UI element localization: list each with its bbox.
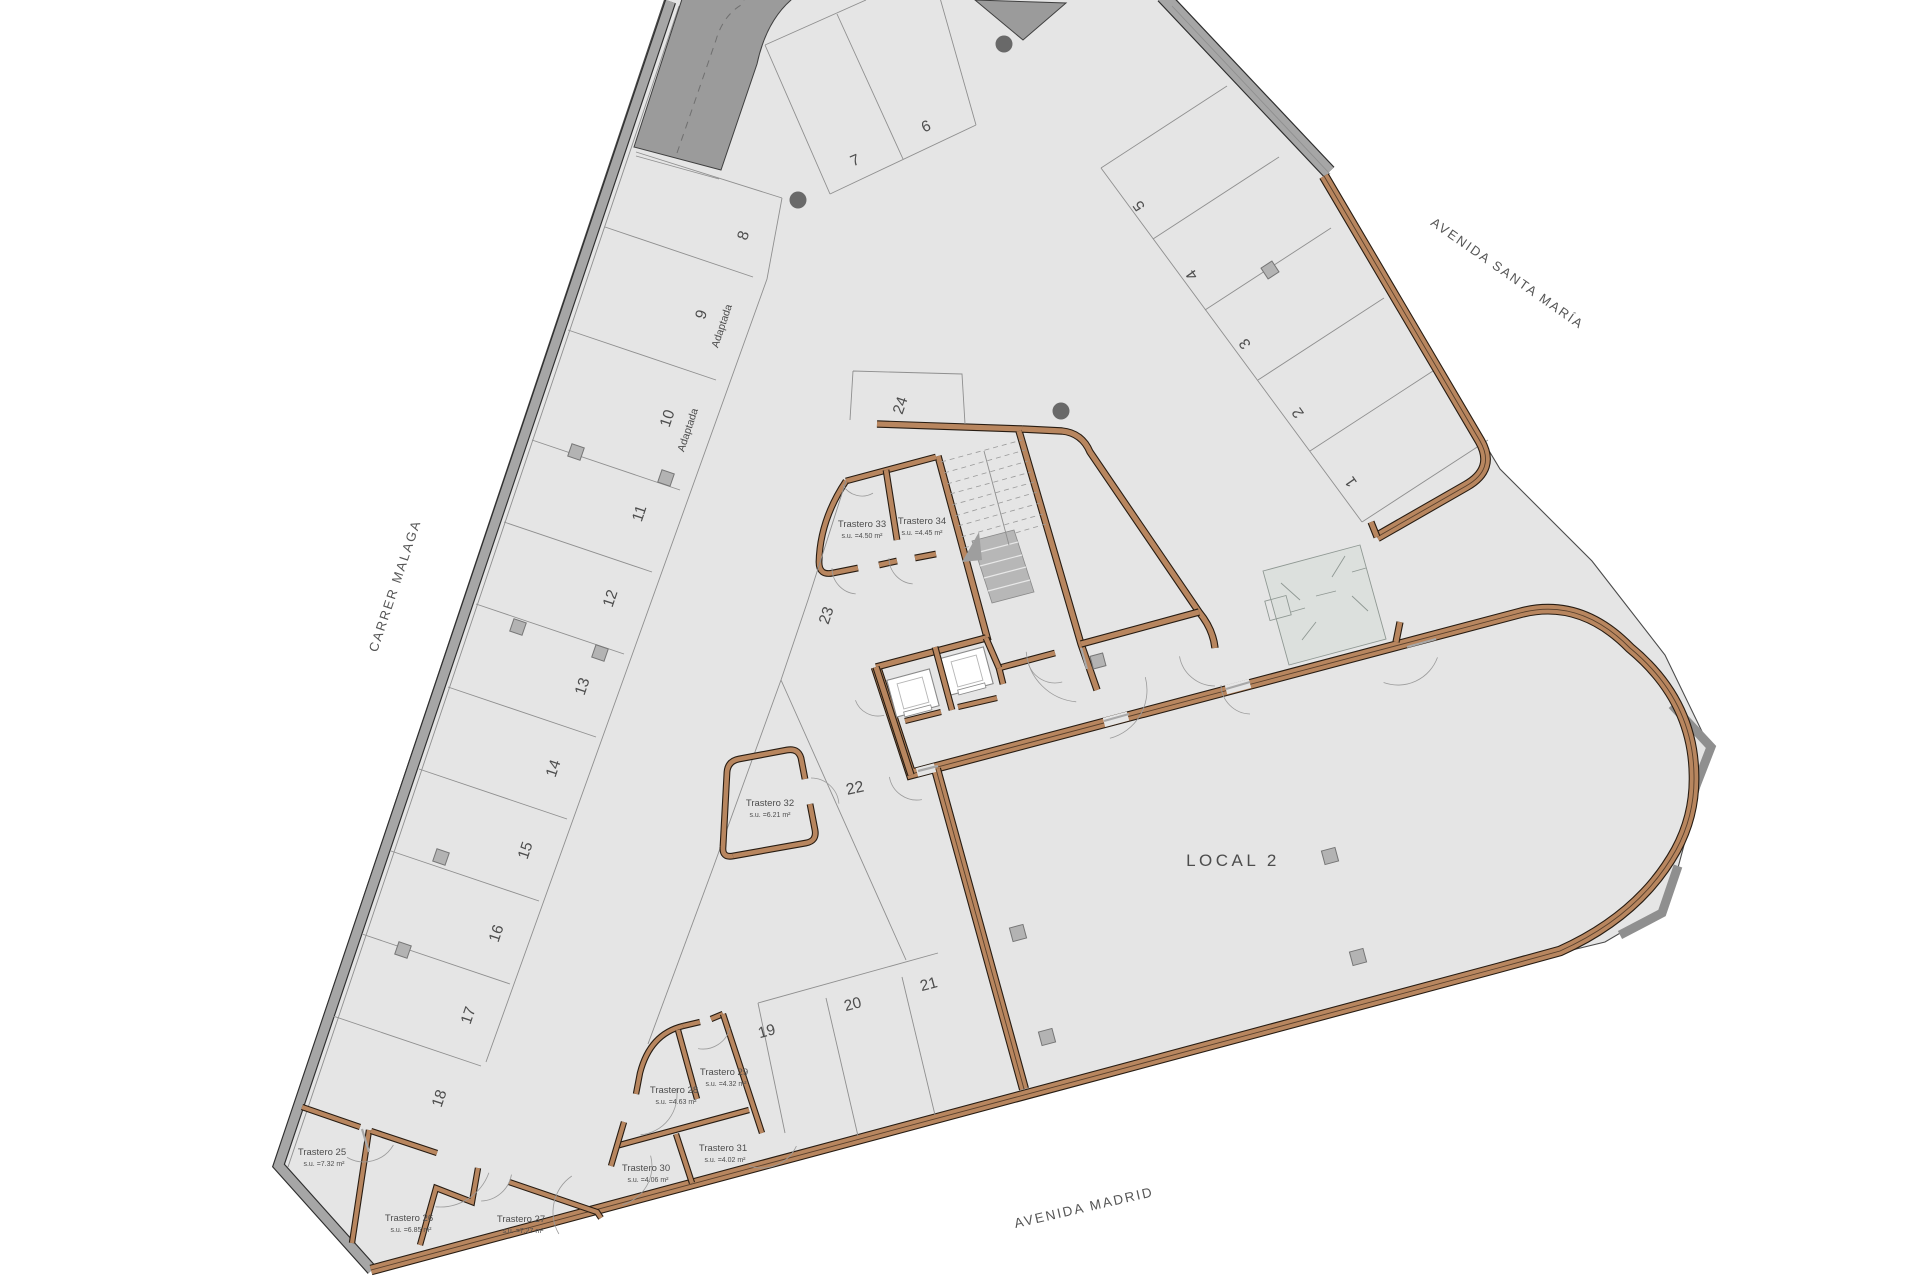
- svg-text:s.u. =4.45 m²: s.u. =4.45 m²: [901, 530, 943, 537]
- svg-text:s.u. =4.02 m²: s.u. =4.02 m²: [704, 1157, 746, 1164]
- svg-text:Trastero 25: Trastero 25: [298, 1147, 346, 1158]
- svg-text:Trastero 31: Trastero 31: [699, 1143, 747, 1154]
- svg-text:CARRER MALAGA: CARRER MALAGA: [366, 517, 424, 653]
- svg-text:Trastero 32: Trastero 32: [746, 798, 794, 809]
- svg-text:s.u. =7.32 m²: s.u. =7.32 m²: [303, 1161, 345, 1168]
- svg-text:s.u. =6.85 m²: s.u. =6.85 m²: [390, 1227, 432, 1234]
- svg-text:Trastero 26: Trastero 26: [385, 1213, 433, 1224]
- svg-text:Trastero 34: Trastero 34: [898, 516, 946, 527]
- svg-text:AVENIDA SANTA MARÍA: AVENIDA SANTA MARÍA: [1428, 215, 1587, 333]
- svg-text:s.u. =4.50 m²: s.u. =4.50 m²: [841, 533, 883, 540]
- svg-text:Trastero 33: Trastero 33: [838, 519, 886, 530]
- svg-text:Trastero 29: Trastero 29: [700, 1067, 748, 1078]
- svg-text:22: 22: [845, 778, 866, 798]
- svg-text:s.u. =4.63 m²: s.u. =4.63 m²: [655, 1099, 697, 1106]
- svg-text:s.u. =4.06 m²: s.u. =4.06 m²: [627, 1177, 669, 1184]
- svg-text:s.u. =6.21 m²: s.u. =6.21 m²: [749, 812, 791, 819]
- svg-text:s.u. =4.32 m²: s.u. =4.32 m²: [705, 1081, 747, 1088]
- svg-text:Trastero 30: Trastero 30: [622, 1163, 670, 1174]
- svg-text:AVENIDA MADRID: AVENIDA MADRID: [1013, 1184, 1155, 1231]
- svg-text:Trastero 28: Trastero 28: [650, 1085, 698, 1096]
- svg-text:LOCAL 2: LOCAL 2: [1186, 851, 1280, 870]
- svg-text:Trastero 27: Trastero 27: [497, 1214, 545, 1225]
- svg-text:s.u. =7.27 m²: s.u. =7.27 m²: [502, 1228, 544, 1235]
